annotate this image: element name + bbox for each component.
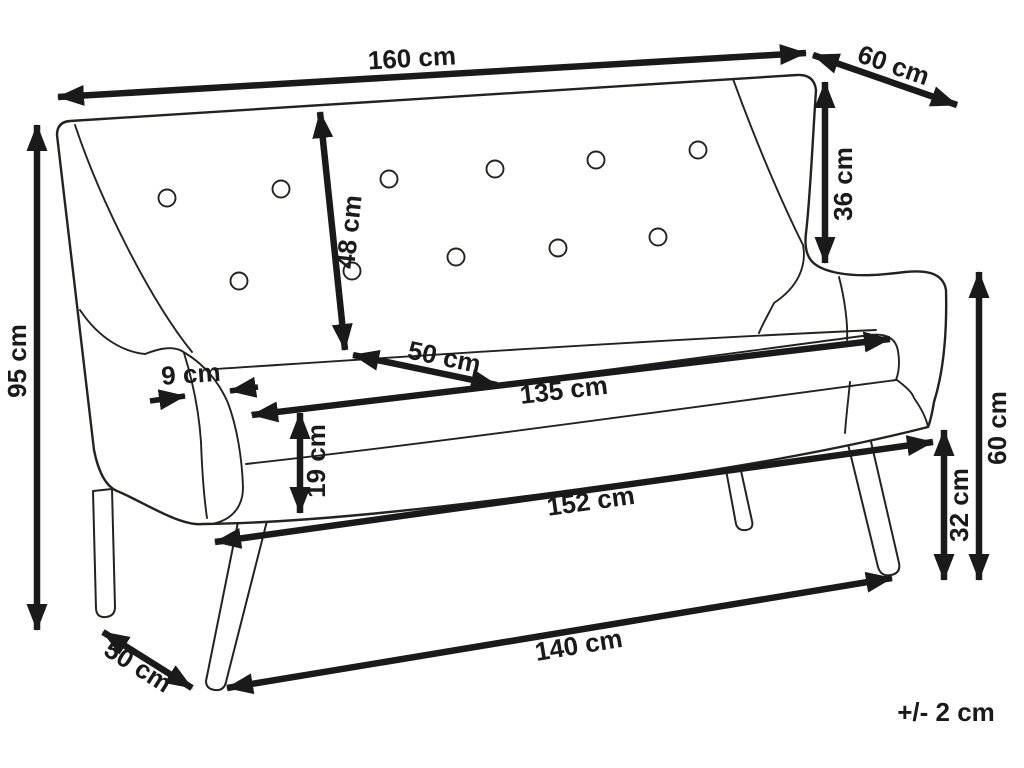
button-dot — [650, 229, 667, 246]
label-leg-span-width: 140 cm — [533, 623, 625, 667]
label-cushion-thickness: 19 cm — [301, 424, 331, 498]
button-dot — [448, 249, 465, 266]
button-dot — [159, 190, 176, 207]
button-dot — [231, 273, 248, 290]
label-leg-height: 32 cm — [944, 468, 974, 542]
button-dot — [690, 142, 707, 159]
button-dot — [273, 181, 290, 198]
tolerance-note: +/- 2 cm — [897, 697, 995, 727]
sofa-dimension-diagram: 160 cm 60 cm 95 cm 48 cm 50 cm 9 cm 135 … — [0, 0, 1024, 768]
label-wing-side-height: 36 cm — [828, 147, 858, 221]
label-arm-height: 60 cm — [982, 391, 1012, 465]
label-armrest-thickness: 9 cm — [160, 357, 221, 391]
back-left-leg — [93, 489, 115, 617]
button-dot — [550, 240, 567, 257]
button-dot — [588, 152, 605, 169]
diagram-canvas: 160 cm 60 cm 95 cm 48 cm 50 cm 9 cm 135 … — [0, 0, 1024, 768]
label-overall-width: 160 cm — [367, 40, 457, 75]
label-overall-height: 95 cm — [2, 324, 32, 398]
label-leg-span-depth: 50 cm — [99, 634, 177, 699]
button-dot — [487, 161, 504, 178]
button-dot — [381, 171, 398, 188]
